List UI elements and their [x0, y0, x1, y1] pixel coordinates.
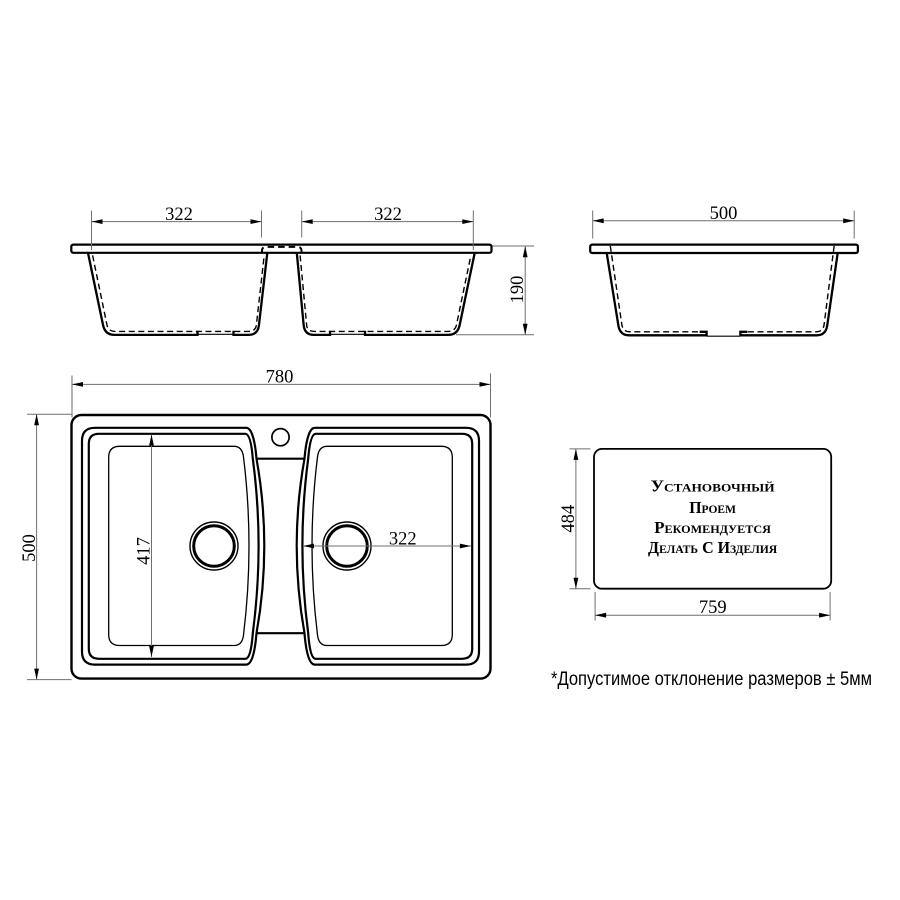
svg-text:417: 417 [135, 537, 155, 565]
svg-text:Установочный: Установочный [651, 477, 776, 496]
svg-text:322: 322 [374, 205, 402, 225]
svg-text:500: 500 [710, 204, 738, 224]
svg-text:780: 780 [266, 368, 294, 388]
svg-text:190: 190 [508, 276, 528, 304]
svg-text:759: 759 [699, 598, 727, 618]
svg-text:Рекомендуется: Рекомендуется [654, 518, 771, 537]
svg-text:322: 322 [389, 530, 417, 550]
svg-text:Проем: Проем [689, 498, 736, 517]
svg-text:322: 322 [165, 205, 193, 225]
svg-text:500: 500 [20, 534, 40, 562]
svg-text:Делать С Изделия: Делать С Изделия [648, 538, 778, 557]
svg-text:*Допустимое отклонение размеро: *Допустимое отклонение размеров ± 5мм [551, 668, 872, 690]
svg-text:484: 484 [559, 505, 579, 533]
